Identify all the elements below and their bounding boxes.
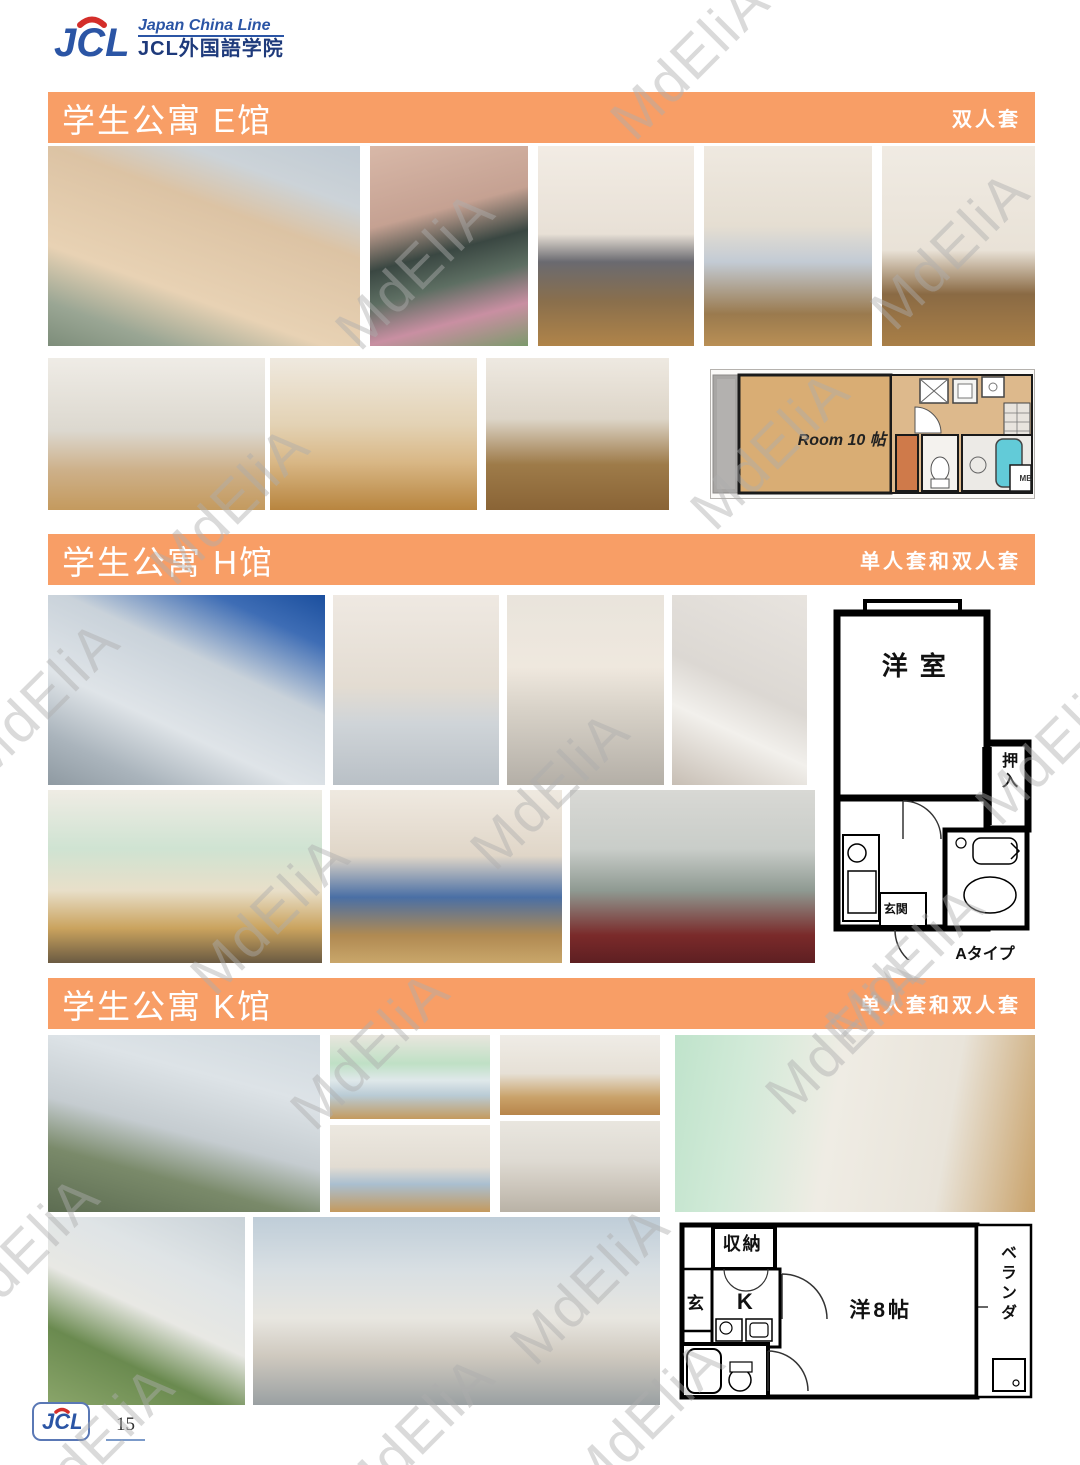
jcl-logo-icon: JCL	[52, 16, 130, 62]
photo-k-building-bamboo	[48, 1217, 245, 1405]
photo-k-entrance-gate	[253, 1217, 660, 1405]
section-k-photo-row-2: 収納 玄 K 洋8帖 ベランダ	[48, 1217, 1035, 1405]
photo-k-building-exterior	[48, 1035, 320, 1212]
brand-tagline: Japan China Line	[138, 18, 284, 38]
photo-k-stack-1	[330, 1035, 490, 1212]
floorplan-k-veranda-label: ベランダ	[994, 1244, 1018, 1324]
section-h-photo-row-1	[48, 595, 807, 785]
floorplan-e-room-label: Room 10 帖	[798, 426, 886, 450]
floorplan-k-entrance-label: 玄	[687, 1289, 704, 1314]
svg-text:JCL: JCL	[42, 1409, 81, 1433]
photo-h-kitchen	[507, 595, 664, 785]
section-e-room-type: 双人套	[952, 103, 1021, 132]
photo-e-building-exterior	[48, 146, 360, 346]
jcl-logo: JCL Japan China Line JCL外国語学院	[52, 16, 284, 62]
photo-h-kitchen-counter	[570, 790, 815, 963]
photo-h-dining-room	[333, 595, 499, 785]
photo-k-single-bed	[330, 1125, 490, 1212]
floorplan-k-room-label: 洋8帖	[849, 1294, 912, 1324]
footer-jcl-logo-icon: JCL	[41, 1407, 81, 1433]
floorplan-h-type-label: Aタイプ	[955, 940, 1015, 964]
section-h-photo-row-2	[48, 790, 815, 963]
floorplan-k-kitchen-label: K	[737, 1289, 753, 1315]
brand-org-name: JCL外国語学院	[138, 39, 284, 60]
section-k-photo-row-1	[48, 1035, 1035, 1212]
photo-e-kitchen-hallway	[538, 146, 694, 346]
page-number: 15	[106, 1414, 145, 1441]
section-h-title: 学生公寓 H馆	[62, 536, 274, 584]
section-e-photo-row-2: Room 10 帖 MB	[48, 358, 1035, 510]
floorplan-h-closet-label: 押入	[995, 752, 1019, 792]
photo-e-closet	[882, 146, 1035, 346]
floorplan-k-storage-label: 収納	[723, 1230, 763, 1256]
floorplan-h-room-label: 洋室	[882, 646, 958, 683]
photo-k-room-fridge	[500, 1035, 660, 1115]
footer-jcl-logo: JCL	[32, 1402, 90, 1441]
section-e-title: 学生公寓 E馆	[62, 94, 272, 142]
svg-text:JCL: JCL	[54, 21, 130, 62]
brochure-page: JCL Japan China Line JCL外国語学院 学生公寓 E馆 双人…	[0, 0, 1080, 1465]
section-k-title: 学生公寓 K馆	[62, 980, 272, 1028]
brand-text: Japan China Line JCL外国語学院	[138, 18, 284, 61]
photo-k-stack-2	[500, 1035, 660, 1212]
photo-h-bedroom	[48, 790, 322, 963]
section-k-header: 学生公寓 K馆 单人套和双人套	[48, 978, 1035, 1029]
page-footer: JCL 15	[32, 1402, 145, 1441]
floorplan-e-mb-label: MB	[1020, 474, 1032, 483]
section-k-room-type: 单人套和双人套	[860, 989, 1021, 1018]
photo-h-student-at-desk	[330, 790, 562, 963]
photo-k-bathroom	[500, 1121, 660, 1212]
photo-h-building-exterior	[48, 595, 325, 785]
floorplan-e: Room 10 帖 MB	[710, 369, 1035, 499]
floorplan-k: 収納 玄 K 洋8帖 ベランダ	[678, 1219, 1035, 1404]
photo-e-building-entrance	[370, 146, 528, 346]
section-e-header: 学生公寓 E馆 双人套	[48, 92, 1035, 143]
section-h-header: 学生公寓 H馆 单人套和双人套	[48, 534, 1035, 585]
floorplan-h: 洋室 押入 玄関 Aタイプ	[825, 595, 1035, 960]
photo-e-washing-machine	[704, 146, 872, 346]
section-h-room-type: 单人套和双人套	[860, 545, 1021, 574]
photo-e-bunk-beds	[270, 358, 477, 510]
photo-e-room-window	[48, 358, 265, 510]
section-e-photo-row-1	[48, 146, 1035, 346]
photo-e-hallway-bunk	[486, 358, 669, 510]
floorplan-h-entrance-label: 玄関	[884, 900, 908, 917]
photo-h-toilet	[672, 595, 807, 785]
photo-k-bed-green-curtain	[330, 1035, 490, 1119]
photo-k-room-desk-fridge	[675, 1035, 1035, 1212]
